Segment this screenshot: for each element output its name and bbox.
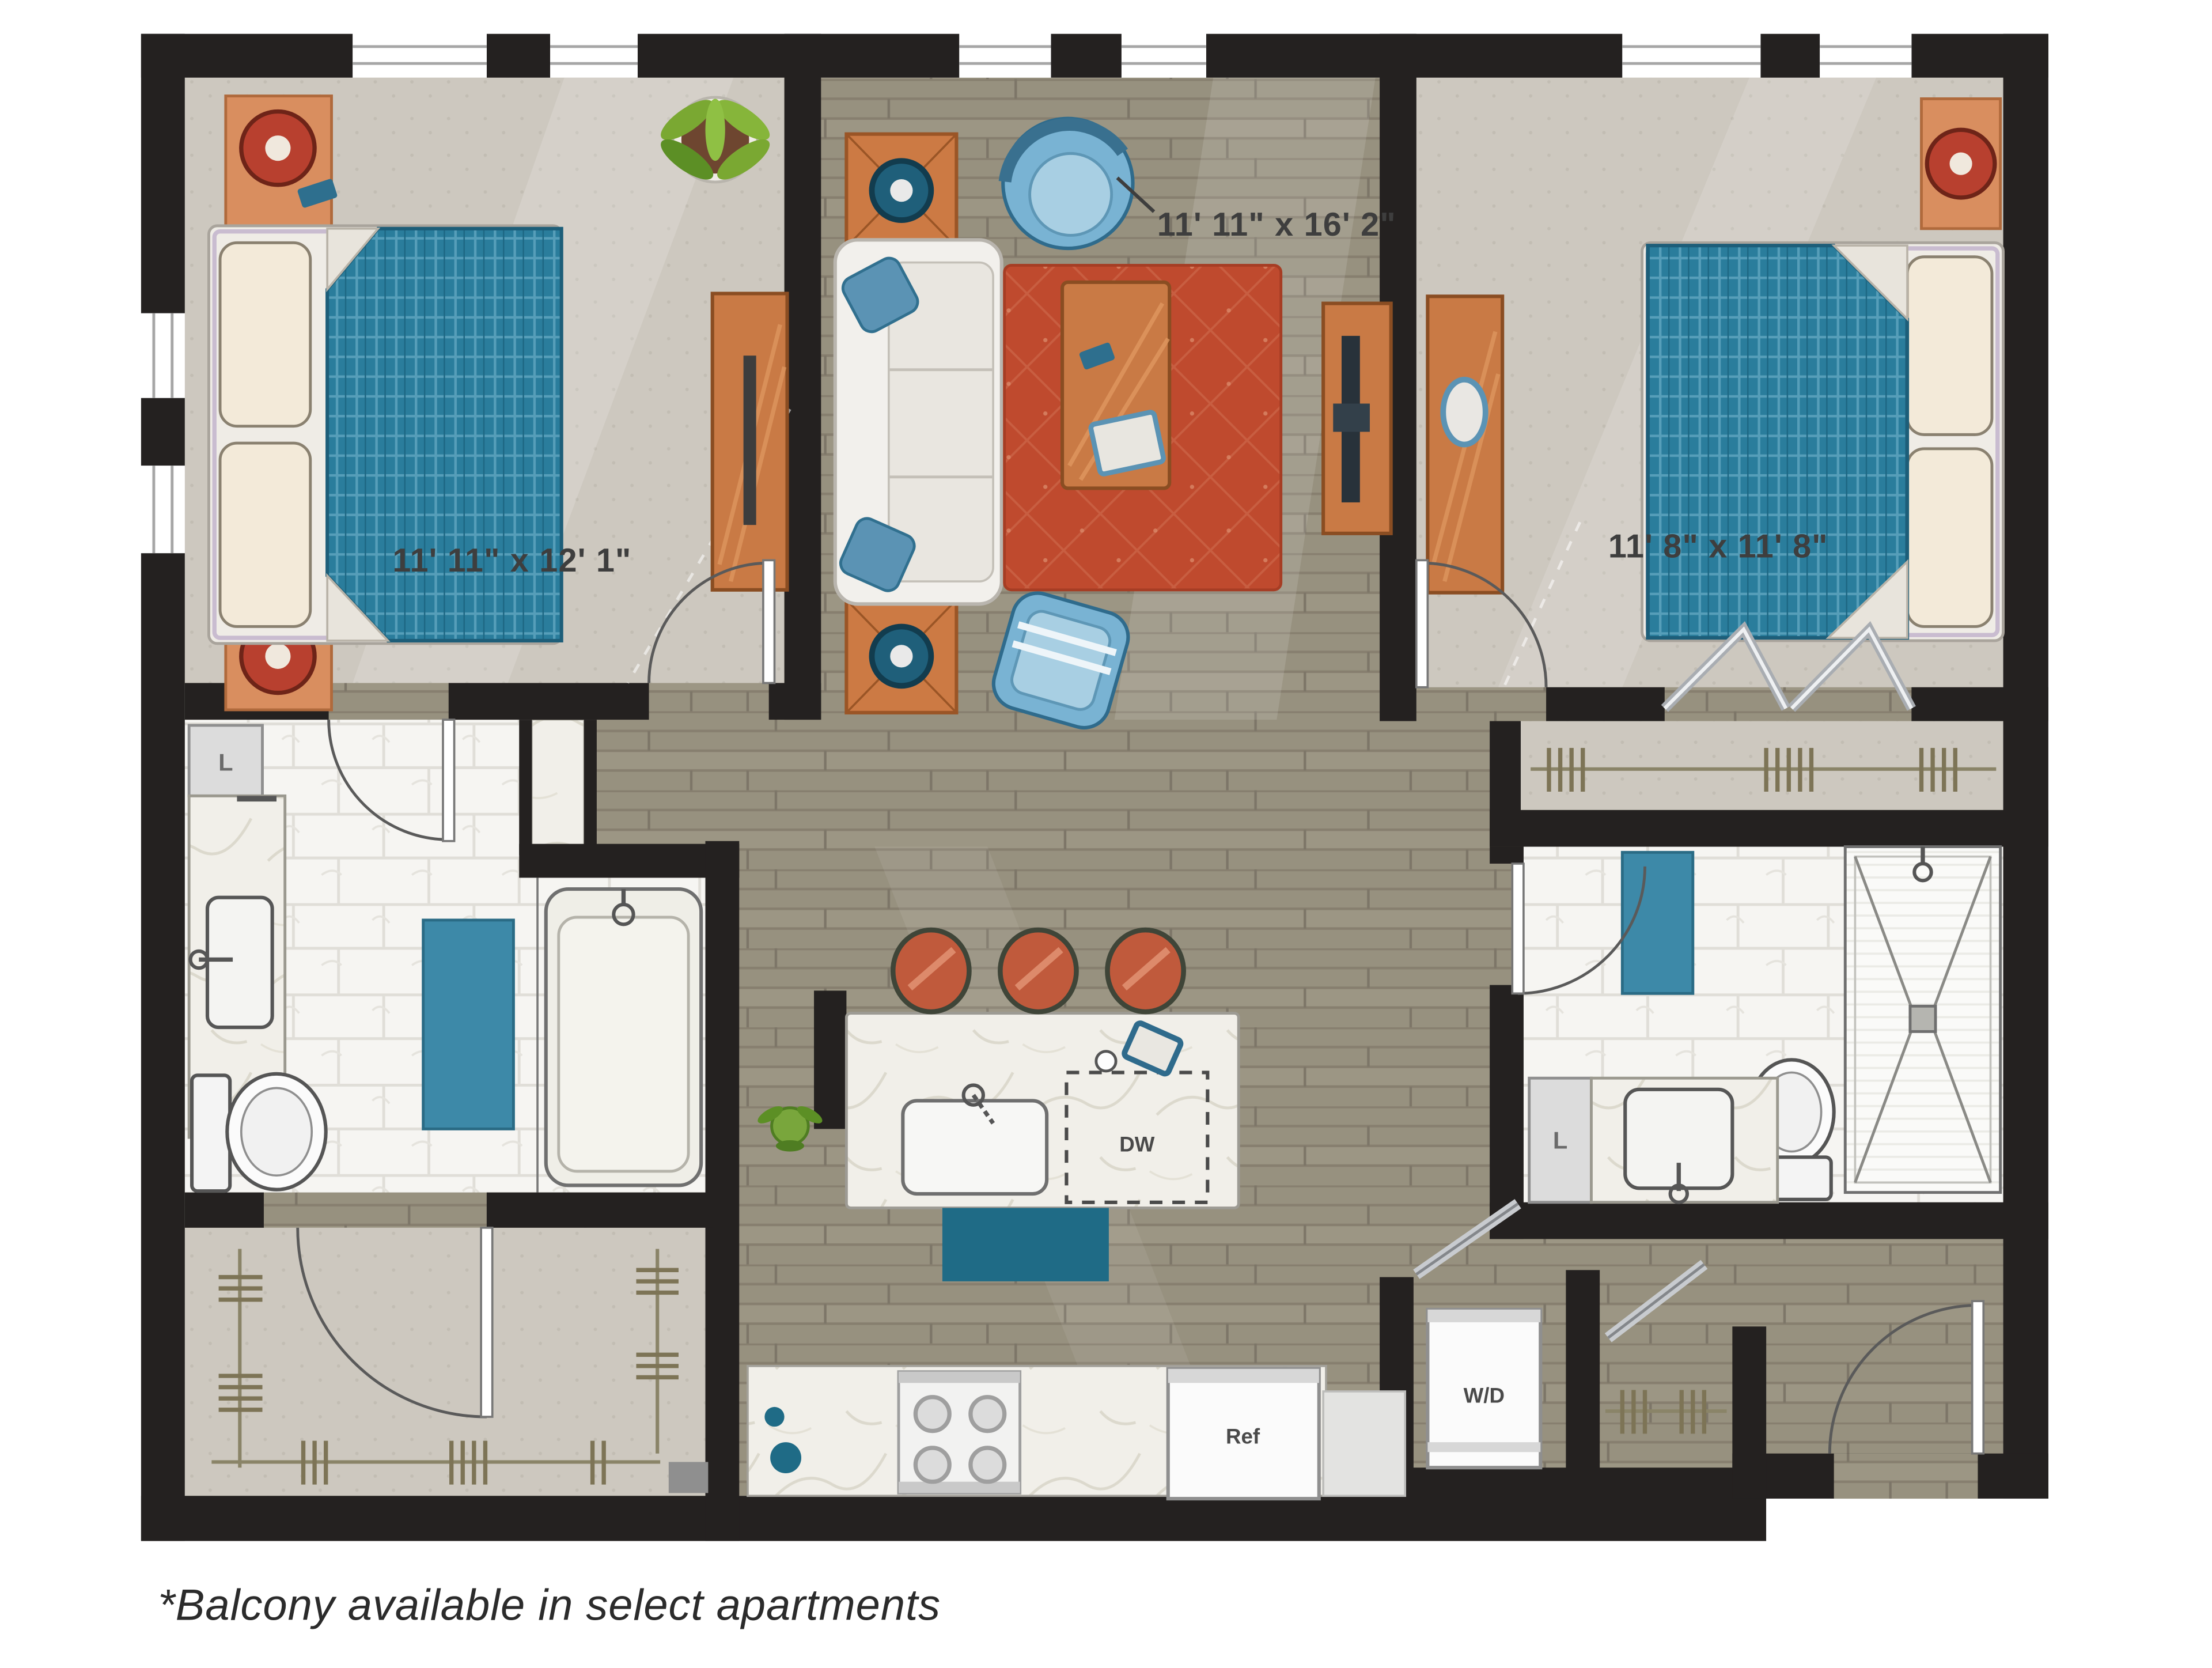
wall bbox=[814, 990, 846, 1129]
burner bbox=[971, 1397, 1005, 1431]
wall bbox=[1490, 1202, 2048, 1239]
closet-shelf bbox=[669, 1462, 709, 1493]
wall bbox=[519, 720, 532, 855]
window bbox=[1622, 34, 1760, 78]
window bbox=[1122, 34, 1206, 78]
bed-queen bbox=[209, 226, 561, 644]
bedroom-1-dimensions: 11' 11" x 12' 1" bbox=[392, 542, 631, 579]
washer-dryer-label: W/D bbox=[1464, 1384, 1505, 1408]
window bbox=[1820, 34, 1911, 78]
wall bbox=[141, 553, 185, 1541]
vanity bbox=[1591, 1078, 1777, 1202]
stove bbox=[899, 1372, 1020, 1493]
wall bbox=[1566, 1270, 1600, 1499]
window bbox=[353, 34, 487, 78]
counter-bowl bbox=[764, 1407, 784, 1427]
bath-mat bbox=[423, 920, 514, 1129]
tv-console bbox=[1323, 304, 1391, 534]
pillow bbox=[1907, 449, 1992, 627]
linen-label: L bbox=[218, 748, 233, 776]
table-lamp-top bbox=[265, 135, 290, 161]
burner bbox=[915, 1448, 949, 1482]
toilet bbox=[192, 1074, 326, 1191]
wall bbox=[1546, 687, 1665, 721]
dresser-handle bbox=[744, 355, 756, 525]
wall bbox=[185, 1193, 264, 1228]
counter-bowl bbox=[770, 1442, 801, 1473]
wall bbox=[487, 34, 550, 78]
end-table bbox=[846, 134, 956, 247]
dresser bbox=[1427, 296, 1502, 592]
bed-queen bbox=[1642, 243, 2003, 641]
window bbox=[141, 466, 185, 553]
wall bbox=[1490, 985, 1524, 1239]
walkin-closet-carpet bbox=[185, 1228, 713, 1496]
dishwasher-label: DW bbox=[1119, 1133, 1155, 1156]
bedroom-2-dimensions: 11' 8" x 11' 8" bbox=[1608, 528, 1828, 565]
wall bbox=[141, 398, 185, 466]
egg bbox=[1096, 1052, 1116, 1071]
wall bbox=[769, 683, 821, 720]
wall bbox=[785, 34, 821, 720]
exterior bbox=[1766, 1499, 2048, 1583]
burner bbox=[915, 1397, 949, 1431]
laundry-closet: W/D bbox=[1427, 1310, 1540, 1467]
wall bbox=[141, 1496, 1766, 1541]
kitchen-island: DW bbox=[846, 1013, 1238, 1208]
wall bbox=[705, 841, 739, 1541]
wall bbox=[1760, 34, 1820, 78]
vanity-sink bbox=[207, 898, 272, 1027]
window bbox=[550, 34, 638, 78]
wall bbox=[449, 683, 649, 720]
bar-stools bbox=[893, 930, 1183, 1012]
counter-return bbox=[1323, 1391, 1405, 1496]
shower-drain bbox=[1910, 1006, 1935, 1031]
wall bbox=[1490, 847, 1524, 864]
island-sink bbox=[903, 1100, 1047, 1194]
wall bbox=[1911, 687, 2048, 721]
linen-niche-floor bbox=[532, 720, 584, 855]
sofa bbox=[835, 240, 1002, 604]
footnote: *Balcony available in select apartments bbox=[158, 1581, 941, 1630]
wall bbox=[1732, 1326, 1766, 1499]
window bbox=[141, 313, 185, 398]
pillow bbox=[220, 243, 310, 426]
dresser-bowl bbox=[1443, 380, 1485, 445]
window bbox=[959, 34, 1051, 78]
refrigerator-label: Ref bbox=[1226, 1425, 1260, 1448]
pillow bbox=[220, 443, 310, 626]
wall bbox=[2003, 34, 2048, 1499]
wall bbox=[1051, 34, 1121, 78]
linen-label: L bbox=[1553, 1127, 1567, 1154]
kitchen-mat bbox=[942, 1208, 1109, 1281]
pillow bbox=[1907, 257, 1992, 435]
wall bbox=[1490, 810, 2048, 847]
bathtub bbox=[546, 889, 701, 1185]
shower bbox=[1845, 847, 2000, 1193]
refrigerator: Ref bbox=[1168, 1369, 1319, 1499]
blanket bbox=[1647, 245, 1907, 638]
wall bbox=[487, 1193, 713, 1228]
tray bbox=[1090, 411, 1164, 475]
burner bbox=[971, 1448, 1005, 1482]
wall bbox=[584, 720, 597, 855]
floor-plan: 11' 11" x 12' 1" bbox=[0, 0, 2212, 1668]
table-lamp-top bbox=[265, 644, 290, 669]
dresser bbox=[713, 293, 787, 589]
end-table bbox=[846, 600, 956, 713]
coffee-table bbox=[1062, 282, 1169, 489]
wall bbox=[141, 34, 185, 313]
living-room-dimensions: 11' 11" x 16' 2" bbox=[1157, 206, 1396, 243]
table-lamp-top bbox=[1949, 153, 1972, 175]
